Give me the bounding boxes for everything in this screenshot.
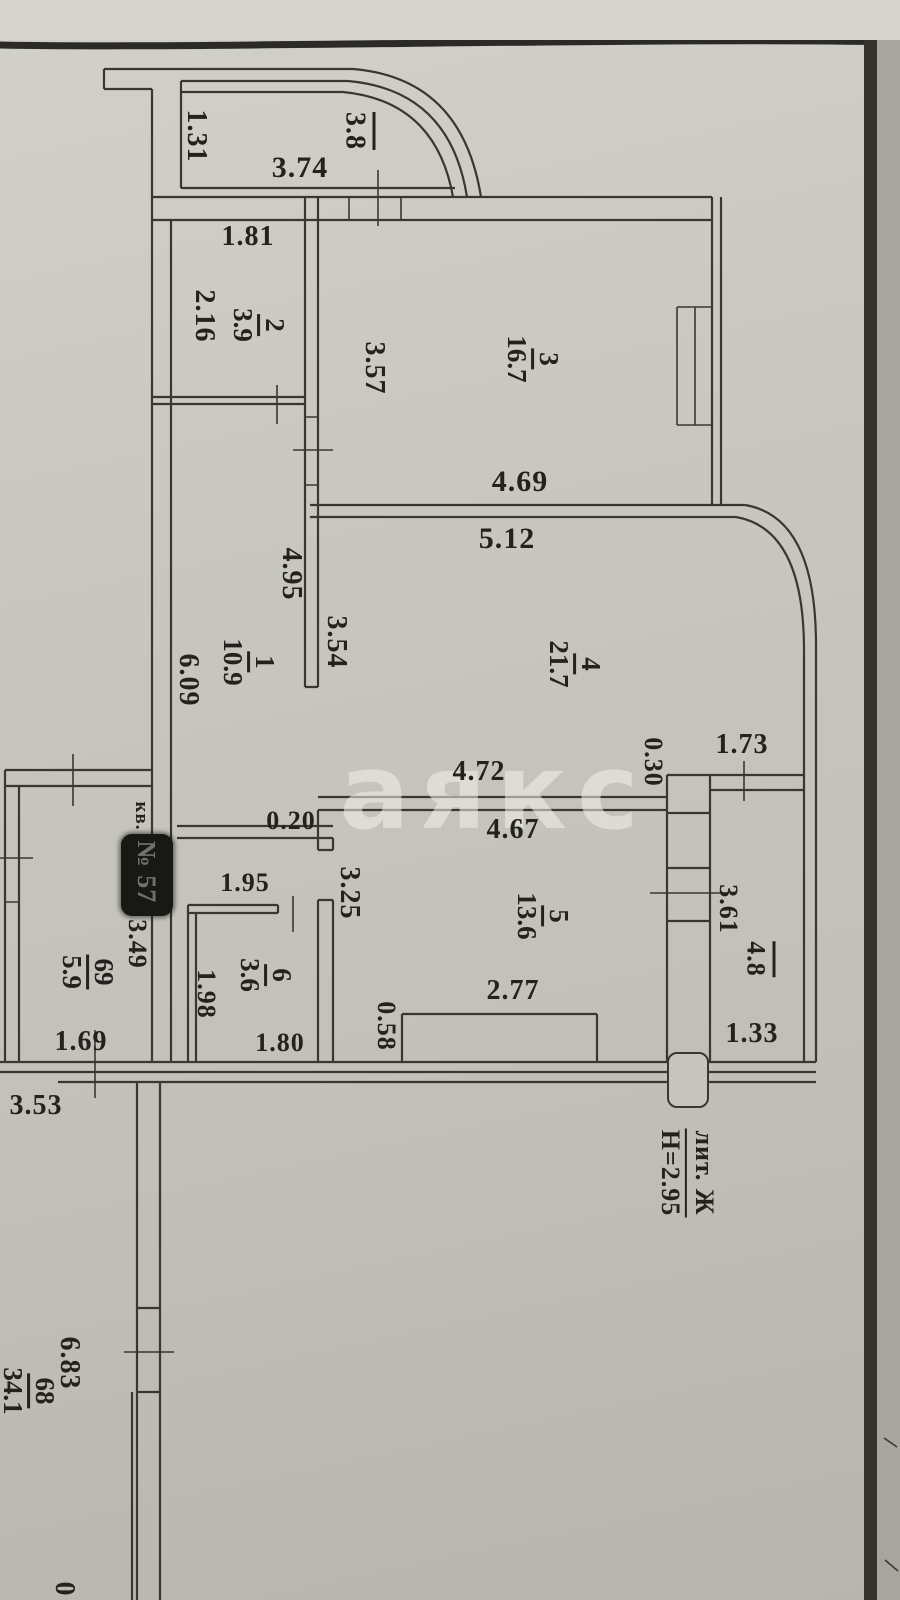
room6-label: 6 3.6	[236, 958, 296, 992]
page-top-border	[0, 41, 900, 46]
loggia69-label: 69 5.9	[58, 955, 118, 990]
room3-area: 16.7	[503, 335, 531, 382]
page-top-margin	[0, 0, 900, 40]
room2-number: 2	[257, 314, 289, 336]
room4-dim-window: 1.73	[716, 729, 769, 761]
ceiling-height: Н=2.95	[656, 1130, 685, 1217]
pilaster	[668, 1053, 708, 1107]
room4-dim-wall: 0.30	[638, 737, 668, 787]
room5-dim-top: 4.67	[487, 814, 540, 846]
loggia68-area: 34.1	[0, 1367, 27, 1414]
balcony-right-dim-left: 3.61	[713, 884, 743, 934]
room5-dim-closet: 2.77	[487, 975, 540, 1007]
room3-number: 3	[531, 348, 563, 370]
room3-label: 3 16.7	[503, 335, 563, 382]
room2-area: 3.9	[229, 308, 257, 342]
room4-label: 4 21.7	[545, 640, 605, 687]
loggia69-area: 5.9	[58, 955, 86, 989]
page-right-edge-strip	[877, 40, 900, 1600]
room4-dim-bottom: 4.72	[453, 756, 506, 788]
apartment-prefix: кв.	[130, 802, 152, 831]
room4-dim-top: 5.12	[479, 522, 536, 556]
balcony-right-dim-bottom: 1.33	[726, 1018, 779, 1050]
room4-dim-left: 3.54	[320, 616, 352, 669]
room6-dim-left: 1.98	[191, 969, 221, 1019]
balcony-top-depth: 1.31	[180, 110, 212, 163]
room4-area: 21.7	[545, 640, 573, 687]
page-right-edge-dark	[864, 40, 877, 1600]
room5-number: 5	[541, 905, 573, 927]
room6-dim-top: 1.95	[220, 868, 270, 898]
room3-dim-left: 3.57	[358, 342, 390, 395]
room1-area: 10.9	[219, 638, 247, 685]
room2-dim-left: 2.16	[188, 290, 220, 343]
loggia68-number: 68	[27, 1374, 59, 1409]
balcony-top-width: 3.74	[272, 151, 329, 185]
loggia69-number: 69	[86, 955, 118, 990]
room5-dim-left: 3.25	[333, 867, 365, 920]
room3-dim-bottom: 4.69	[492, 465, 549, 499]
apartment-number: № 57	[131, 841, 161, 904]
loggia69-dim-right: 3.49	[122, 919, 152, 969]
room2-label: 2 3.9	[229, 308, 289, 342]
room1-dim-left: 6.09	[172, 654, 204, 707]
balcony-right-area: 4.8	[741, 941, 776, 977]
room6-area: 3.6	[236, 958, 264, 992]
room2-dim-top: 1.81	[222, 221, 275, 253]
room5-label: 5 13.6	[513, 892, 573, 939]
loggia68-label: 68 34.1	[0, 1367, 59, 1414]
loggia69-dim-bottom: 1.69	[55, 1026, 108, 1058]
liter-label: лит. Ж	[685, 1128, 719, 1217]
balcony-top-area: 3.8	[339, 112, 376, 150]
room6-number: 6	[264, 964, 296, 986]
liter-block: лит. Ж Н=2.95	[655, 1128, 719, 1217]
room4-number: 4	[573, 653, 605, 675]
room1-label: 1 10.9	[219, 638, 279, 685]
room6-dim-bottom: 1.80	[255, 1028, 305, 1058]
room5-area: 13.6	[513, 892, 541, 939]
walls-curved	[343, 69, 816, 1062]
room1-dim-passage: 0.20	[266, 806, 316, 836]
room5-dim-closet-side: 0.58	[371, 1001, 401, 1051]
outside-dim: 3.53	[10, 1090, 63, 1122]
room1-dim-right: 4.95	[275, 548, 307, 601]
room1-number: 1	[247, 651, 279, 673]
corner-digit: 0	[48, 1582, 80, 1597]
